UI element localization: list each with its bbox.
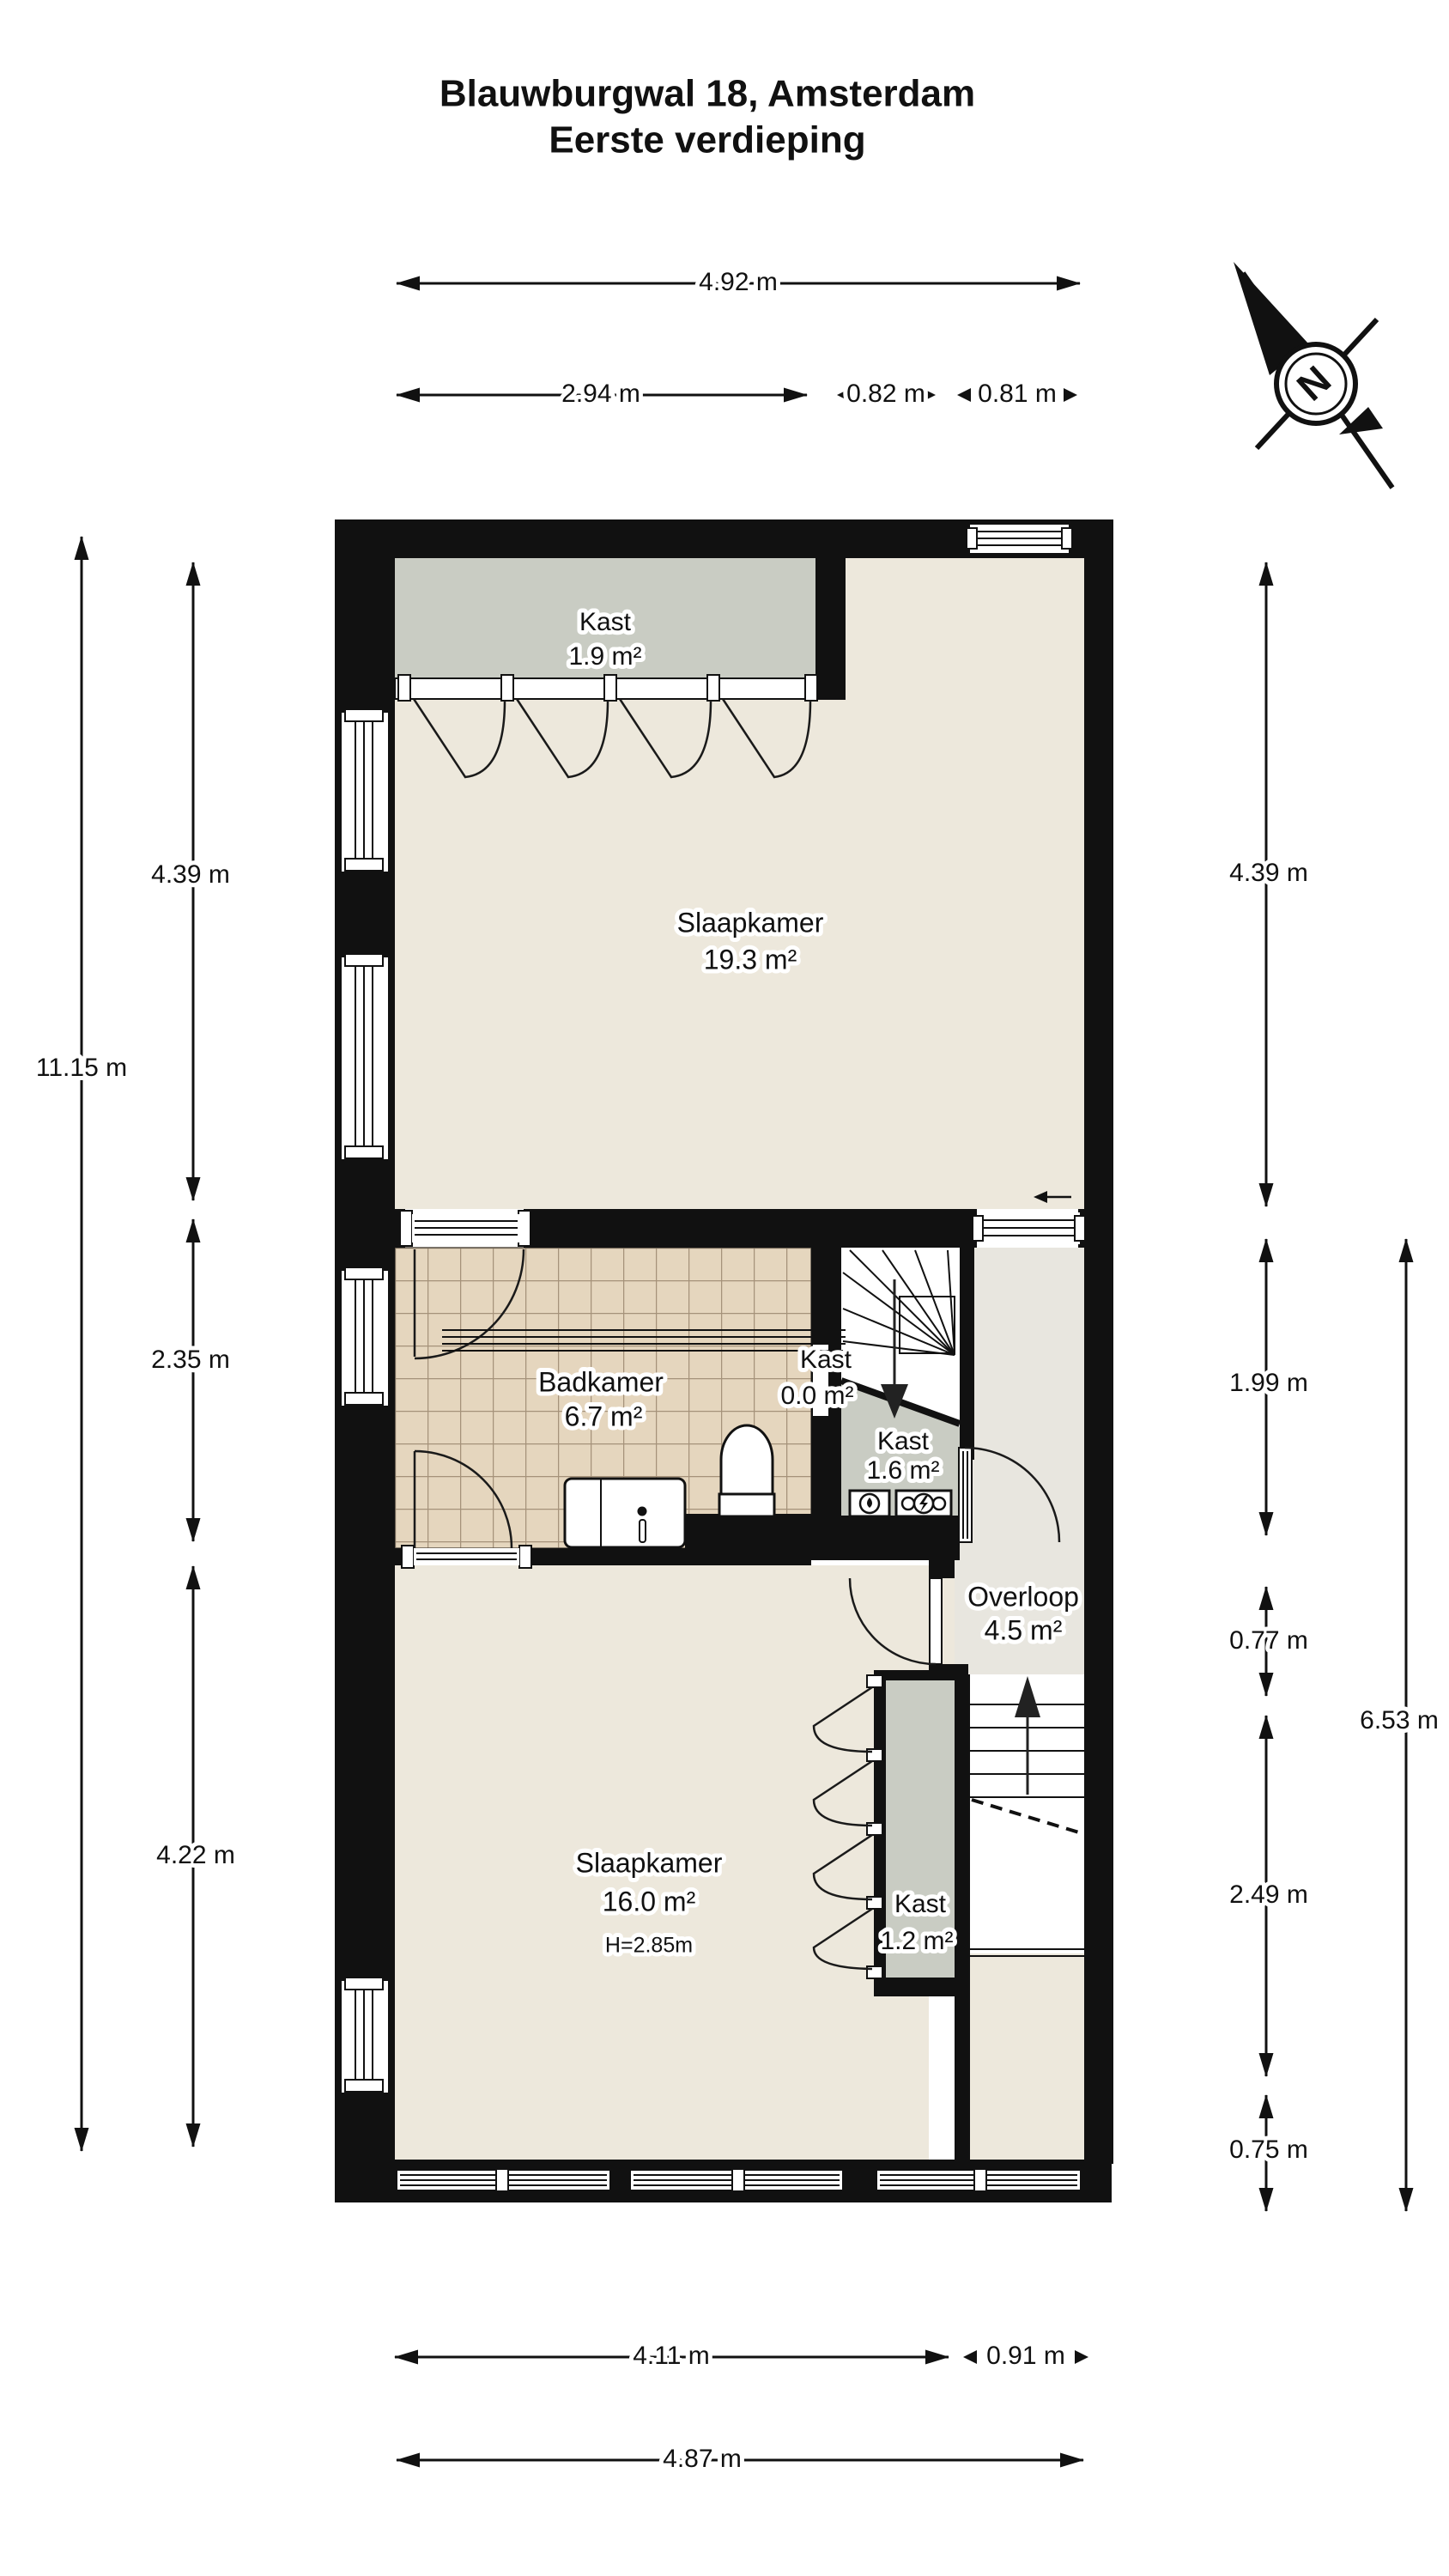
label-kast-trap-area: 1.6 m²	[866, 1456, 939, 1485]
dimension-right-r3: 2.49 m	[1229, 1880, 1308, 1909]
label-kast-slaapkamer-area: 1.2 m²	[880, 1927, 953, 1955]
dimension-left-lower: 4.22 m	[156, 1841, 235, 1869]
label-slaapkamer-2-height: H=2.85m	[605, 1934, 693, 1958]
dimension-right-r1: 1.99 m	[1229, 1369, 1308, 1397]
dimension-right-total: 6.53 m	[1360, 1706, 1439, 1735]
window-top	[967, 525, 1072, 553]
wall-stairwell	[960, 1209, 974, 1460]
wall-w2-c	[685, 1514, 811, 1565]
window-interior-overloop	[973, 1212, 1085, 1244]
dimension-right-r4: 0.75 m	[1229, 2136, 1308, 2164]
dimension-bottom-left: 4.11 m	[633, 2342, 710, 2370]
label-kast-trap-name: Kast	[877, 1427, 930, 1455]
label-badkamer-area: 6.7 m²	[565, 1400, 643, 1431]
washbasin	[565, 1479, 685, 1547]
dimension-left-total: 11.15 m	[36, 1054, 127, 1082]
label-slaapkamer-1-area: 19.3 m²	[704, 944, 797, 975]
label-overloop-name: Overloop	[967, 1581, 1079, 1612]
window-bottom-3	[877, 2169, 1080, 2191]
label-kast-klein-name: Kast	[800, 1346, 852, 1374]
room-overloop-strip2	[955, 1560, 977, 1674]
window-bottom-2	[631, 2169, 842, 2191]
wall-w1-b	[524, 1209, 977, 1248]
label-overloop-area: 4.5 m²	[985, 1614, 1063, 1645]
toilet	[719, 1425, 774, 1516]
floorplan-page: Blauwburgwal 18, Amsterdam Eerste verdie…	[0, 0, 1449, 2576]
floorplan-drawing: Blauwburgwal 18, Amsterdam Eerste verdie…	[0, 0, 1449, 2576]
window-left-4	[342, 1978, 388, 2093]
label-badkamer-name: Badkamer	[538, 1366, 664, 1397]
label-kast-slaapkamer-name: Kast	[894, 1890, 947, 1918]
dimension-bottom-right: 0.91 m	[986, 2342, 1065, 2370]
window-left-1	[342, 709, 388, 872]
label-slaapkamer-2-area: 16.0 m²	[603, 1886, 696, 1917]
wall-right	[1084, 519, 1113, 2164]
dimension-top-right: 0.81 m	[978, 380, 1057, 408]
dimension-left-upper: 4.39 m	[151, 860, 230, 889]
dimension-left-middle: 2.35 m	[151, 1346, 230, 1374]
wall-kast12-right	[955, 1674, 970, 2160]
dimension-right-upper: 4.39 m	[1229, 859, 1308, 887]
floor-under-stairs	[970, 1953, 1084, 2160]
wall-kast-trap-bottom	[811, 1516, 960, 1560]
label-kast-top-name: Kast	[579, 608, 632, 636]
dimension-top-left: 2.94 m	[561, 380, 640, 408]
wall-w2-b	[530, 1548, 687, 1565]
label-slaapkamer-1-name: Slaapkamer	[677, 907, 824, 938]
faucet-icon	[638, 1507, 647, 1516]
compass-rose: N	[1234, 262, 1392, 488]
dimension-top-mid: 0.82 m	[846, 380, 925, 408]
dimension-right-r2: 0.77 m	[1229, 1626, 1308, 1655]
label-slaapkamer-2-name: Slaapkamer	[576, 1847, 723, 1878]
page-subtitle: Eerste verdieping	[549, 119, 865, 161]
window-bottom-1	[397, 2169, 609, 2191]
label-kast-top-area: 1.9 m²	[568, 642, 641, 671]
window-left-2	[342, 954, 388, 1159]
page-title: Blauwburgwal 18, Amsterdam	[440, 73, 975, 115]
dimension-top-total: 4.92 m	[699, 268, 778, 296]
meter-boxes	[850, 1491, 951, 1516]
label-kast-klein-area: 0.0 m²	[780, 1382, 853, 1410]
wall-kast-top-right	[815, 558, 846, 700]
window-left-3	[342, 1267, 388, 1406]
wall-divider-a	[929, 1560, 955, 1578]
dimension-bottom-total: 4.87 m	[663, 2445, 742, 2473]
